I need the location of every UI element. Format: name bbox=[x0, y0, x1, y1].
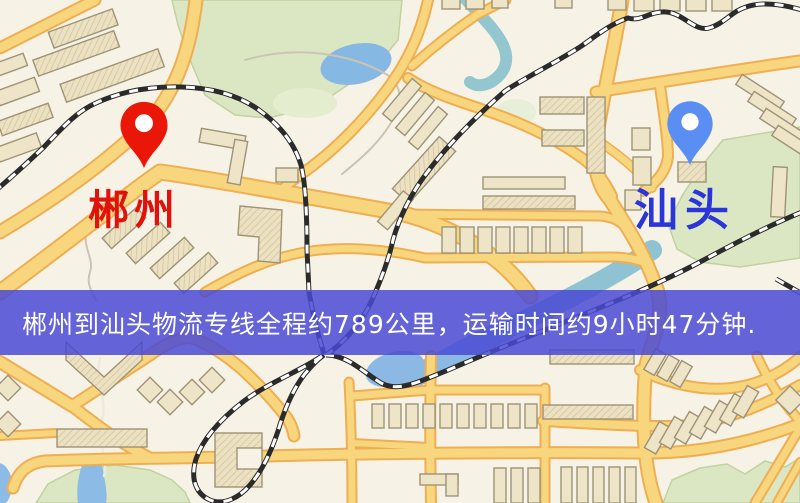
destination-pin-hole bbox=[681, 113, 698, 130]
destination-label: 汕头 bbox=[634, 174, 736, 238]
route-info-banner: 郴州到汕头物流专线全程约789公里，运输时间约9小时47分钟. bbox=[0, 290, 800, 355]
map-background bbox=[0, 0, 800, 503]
origin-pin-hole bbox=[135, 114, 153, 132]
map-canvas[interactable]: 郴州 汕头 郴州到汕头物流专线全程约789公里，运输时间约9小时47分钟. bbox=[0, 0, 800, 503]
origin-label: 郴州 bbox=[88, 176, 180, 236]
route-info-text: 郴州到汕头物流专线全程约789公里，运输时间约9小时47分钟. bbox=[0, 305, 756, 341]
